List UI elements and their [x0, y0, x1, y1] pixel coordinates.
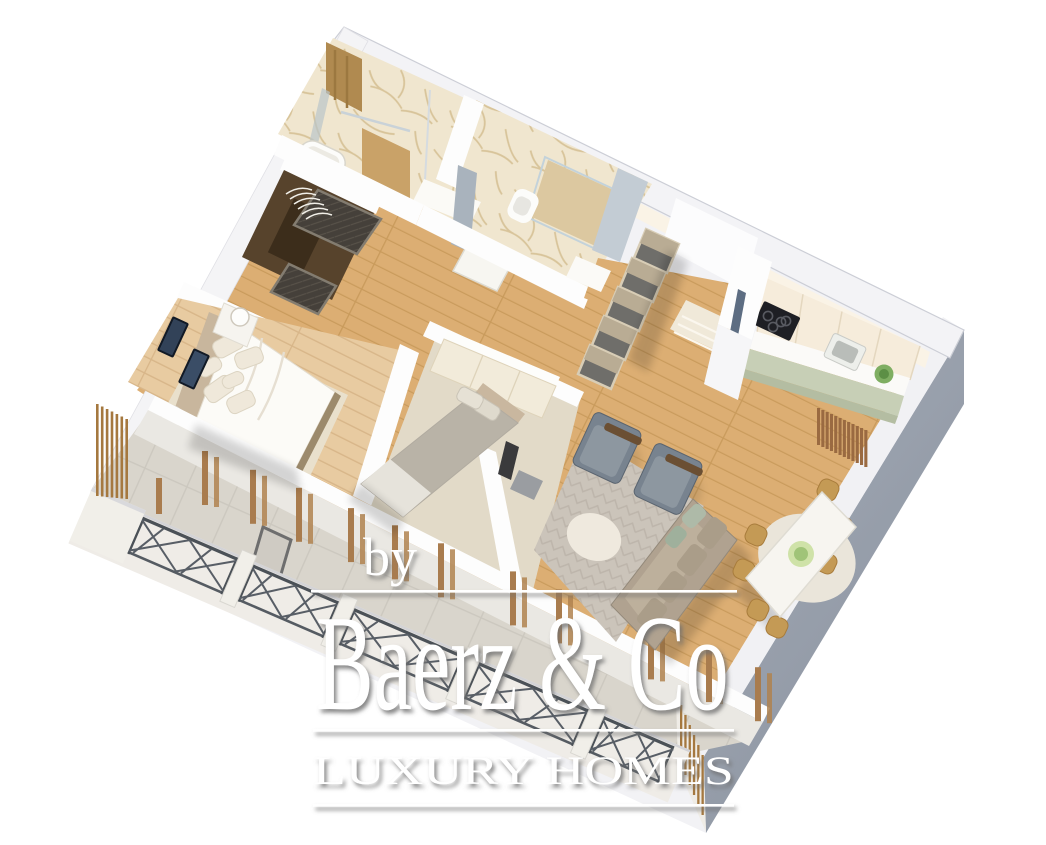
svg-text:by: by: [363, 527, 417, 587]
svg-text:Baerz & Co: Baerz & Co: [316, 587, 729, 739]
svg-text:LUXURY HOMES: LUXURY HOMES: [313, 750, 734, 794]
